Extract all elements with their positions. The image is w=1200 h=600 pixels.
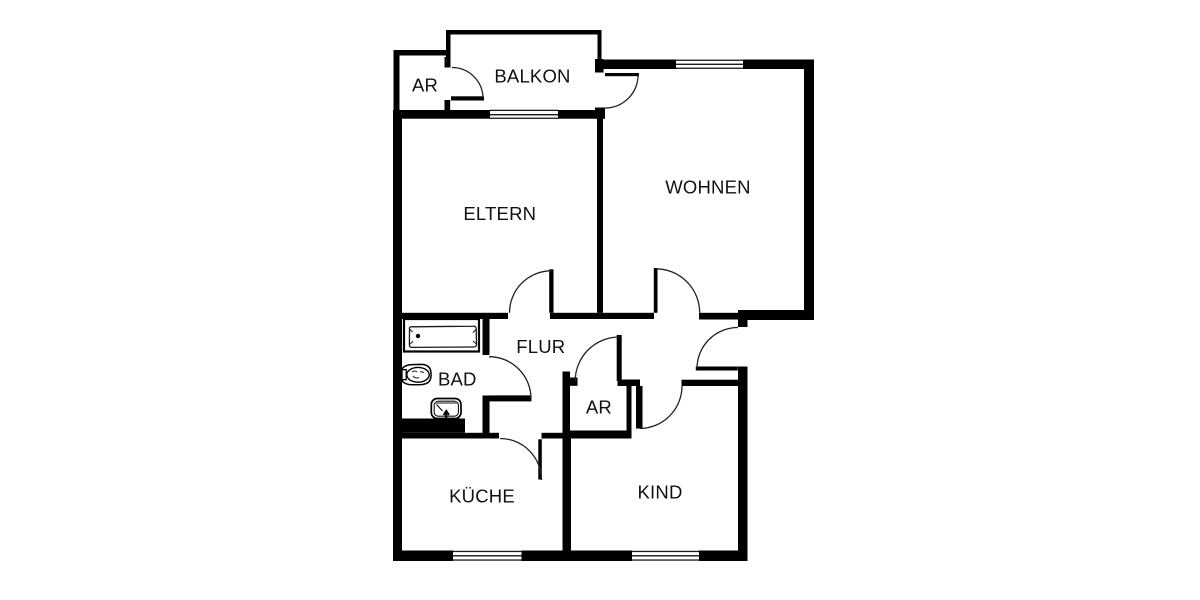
svg-text:FLUR: FLUR bbox=[516, 336, 565, 357]
svg-text:WOHNEN: WOHNEN bbox=[665, 176, 750, 197]
svg-text:AR: AR bbox=[586, 396, 612, 417]
svg-text:BAD: BAD bbox=[438, 368, 477, 389]
svg-text:AR: AR bbox=[412, 74, 438, 95]
svg-text:BALKON: BALKON bbox=[494, 66, 570, 87]
svg-text:KÜCHE: KÜCHE bbox=[449, 486, 515, 507]
svg-text:ELTERN: ELTERN bbox=[463, 203, 536, 224]
svg-text:KIND: KIND bbox=[638, 482, 683, 503]
